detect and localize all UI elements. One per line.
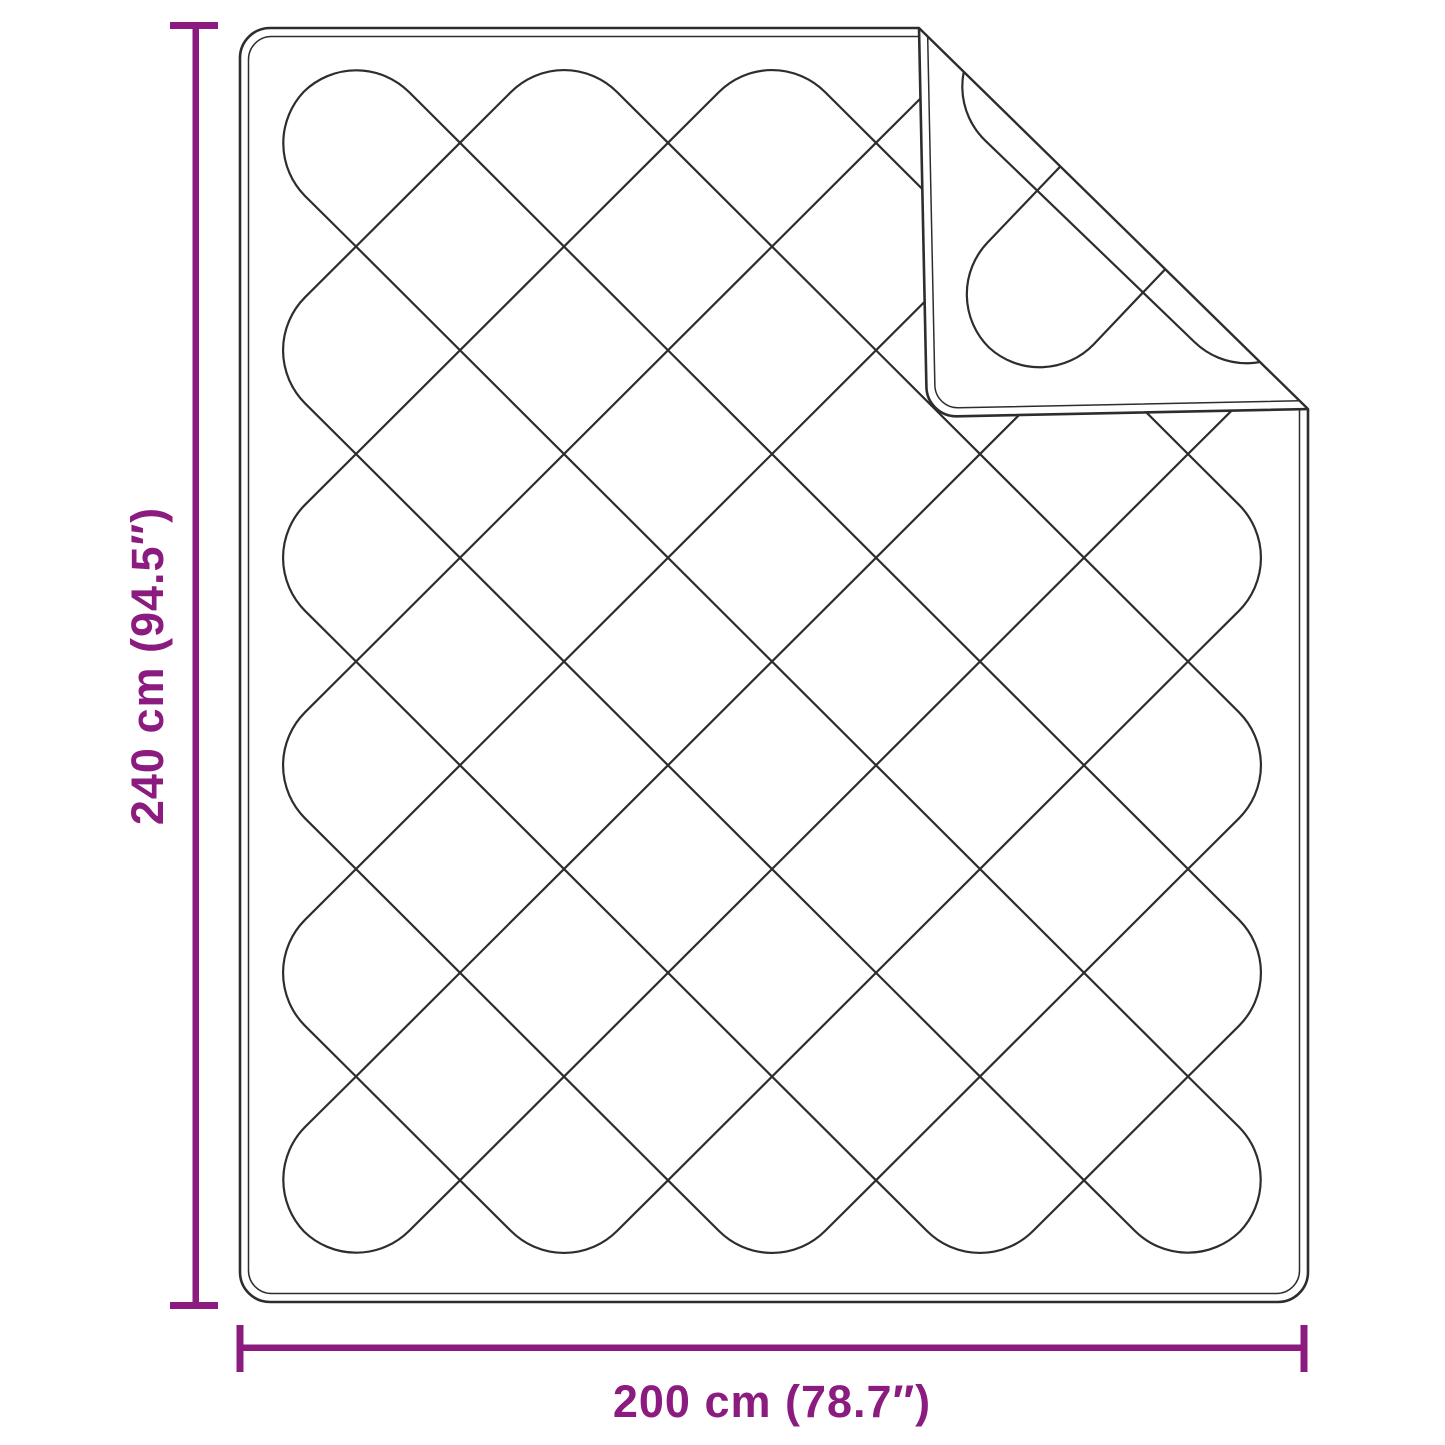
width-dimension-label: 200 cm (78.7″)	[613, 1376, 931, 1427]
width-dimension-right-cap	[1301, 1325, 1308, 1372]
height-dimension-bottom-cap	[170, 1302, 218, 1309]
width-dimension: 200 cm (78.7″)	[237, 1325, 1308, 1427]
blanket-main	[240, 28, 1308, 1302]
width-dimension-line	[240, 1345, 1304, 1352]
folded-corner-flap	[905, 0, 1445, 417]
height-dimension-label: 240 cm (94.5″)	[122, 507, 173, 825]
blanket-dimension-diagram: 240 cm (94.5″) 200 cm (78.7″)	[0, 0, 1445, 1445]
height-dimension-top-cap	[170, 22, 218, 29]
height-dimension: 240 cm (94.5″)	[122, 22, 218, 1309]
height-dimension-line	[193, 22, 200, 1309]
diagram-canvas: 240 cm (94.5″) 200 cm (78.7″)	[0, 0, 1445, 1445]
width-dimension-left-cap	[237, 1325, 244, 1372]
